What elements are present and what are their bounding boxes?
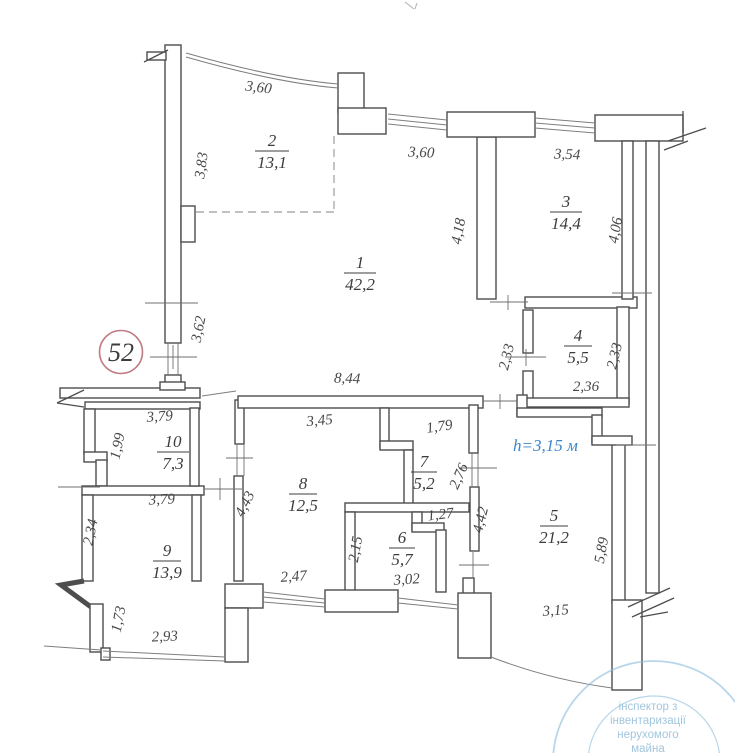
dim-room7-top: 1,79 (425, 417, 454, 437)
svg-text:5: 5 (550, 506, 559, 525)
stamp-line-2: інвентаризації (610, 715, 687, 727)
room-2-label: 2 13,1 (255, 131, 289, 172)
dim-top-room1: 3,60 (407, 144, 436, 161)
break-marks (57, 2, 706, 617)
stamp-line-3: нерухомого (617, 729, 678, 741)
dim-room4-left: 2,33 (496, 342, 518, 371)
svg-text:12,5: 12,5 (288, 496, 318, 515)
room-9-label: 9 13,9 (152, 541, 182, 582)
dim-top-balcony: 3,60 (243, 78, 272, 97)
room-4-label: 4 5,5 (564, 326, 592, 367)
dashed-partition (196, 136, 334, 212)
inspector-stamp: інспектор з інвентаризації нерухомого ма… (553, 661, 735, 753)
svg-text:5,2: 5,2 (413, 474, 435, 493)
dim-room7-bottom: 1,27 (427, 505, 456, 524)
room-3-label: 3 14,4 (550, 192, 582, 233)
svg-text:9: 9 (163, 541, 172, 560)
unit-number-badge: 52 (100, 331, 143, 374)
svg-text:5,7: 5,7 (391, 550, 414, 569)
dim-room4-bottom: 2,36 (573, 379, 600, 395)
svg-text:4: 4 (574, 326, 583, 345)
room-7-label: 7 5,2 (411, 452, 437, 493)
svg-text:3: 3 (561, 192, 571, 211)
svg-text:2: 2 (268, 131, 277, 150)
dim-left-room2: 3,83 (192, 151, 212, 180)
svg-text:7,3: 7,3 (162, 454, 183, 473)
svg-text:10: 10 (165, 432, 183, 451)
room-1-label: 1 42,2 (344, 253, 376, 294)
unit-badge-number: 52 (108, 338, 134, 367)
dim-room5-right: 5,89 (592, 535, 612, 564)
svg-text:8: 8 (299, 474, 308, 493)
dim-left-room1: 3,62 (189, 314, 210, 344)
svg-text:13,1: 13,1 (257, 153, 287, 172)
stamp-line-4: майна (631, 743, 665, 753)
walls (60, 45, 683, 690)
ceiling-height-note: h=3,15 м (513, 436, 578, 455)
dim-room10-left: 1,99 (108, 431, 129, 460)
svg-text:13,9: 13,9 (152, 563, 182, 582)
room-5-label: 5 21,2 (539, 506, 569, 547)
room-6-label: 6 5,7 (389, 528, 415, 569)
dim-hall-width: 8,44 (334, 371, 361, 388)
room-8-label: 8 12,5 (288, 474, 318, 515)
dim-room8-bottom: 2,47 (280, 568, 309, 586)
svg-text:1: 1 (356, 253, 365, 272)
dim-room9-bottom-left: 1,73 (109, 605, 130, 634)
svg-text:5,5: 5,5 (567, 348, 588, 367)
room-10-label: 10 7,3 (157, 432, 189, 473)
dim-room7-right: 2,76 (447, 461, 472, 492)
dim-room10-top: 3,79 (145, 408, 174, 426)
dim-room6-bottom: 3,02 (392, 571, 421, 589)
dim-room3-left: 4,18 (449, 216, 469, 245)
dim-room9-bottom: 2,93 (151, 628, 178, 645)
dim-room6-left: 2,15 (346, 534, 366, 563)
svg-text:42,2: 42,2 (345, 275, 375, 294)
dim-room5-bottom: 3,15 (541, 602, 570, 620)
svg-text:7: 7 (420, 452, 430, 471)
floor-plan-page: 3,60 3,60 3,54 3,83 3,62 4,18 4,06 2,33 … (0, 0, 735, 753)
floor-plan-svg: 3,60 3,60 3,54 3,83 3,62 4,18 4,06 2,33 … (0, 0, 735, 753)
svg-text:14,4: 14,4 (551, 214, 581, 233)
stamp-line-1: інспектор з (619, 701, 678, 713)
svg-text:6: 6 (398, 528, 407, 547)
dim-top-room3: 3,54 (553, 147, 581, 164)
svg-text:21,2: 21,2 (539, 528, 569, 547)
dim-room8-top: 3,45 (305, 412, 334, 430)
dim-room9-top: 3,79 (147, 491, 176, 508)
